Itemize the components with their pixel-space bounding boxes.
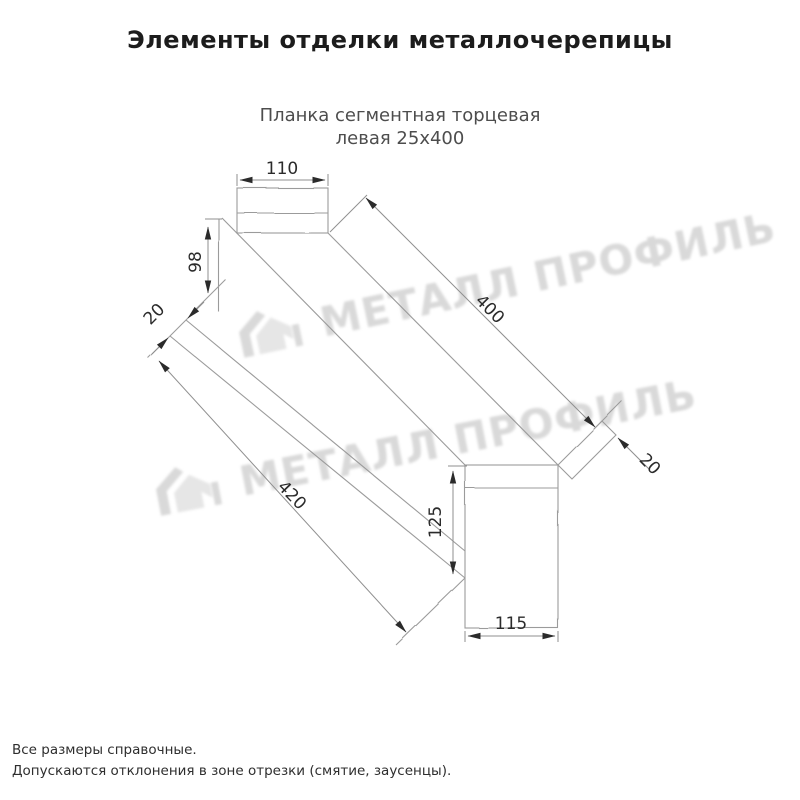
technical-drawing: МЕТАЛЛ ПРОФИЛЬ МЕТАЛЛ ПРОФИЛЬ xyxy=(0,0,800,800)
footnote-line-1: Все размеры справочные. xyxy=(12,740,451,761)
metall-profil-house-logo xyxy=(236,303,304,358)
dim-end-width-label: 115 xyxy=(495,614,527,634)
dim-top-width-label: 110 xyxy=(266,159,298,179)
footnotes: Все размеры справочные. Допускаются откл… xyxy=(12,740,451,782)
dim-end-height-label: 125 xyxy=(426,506,446,538)
footnote-line-2: Допускаются отклонения в зоне отрезки (с… xyxy=(12,761,451,782)
catalog-page: Элементы отделки металлочерепицы Планка … xyxy=(0,0,800,800)
dim-left-height-label: 98 xyxy=(186,251,206,273)
watermark-text-upper: МЕТАЛЛ ПРОФИЛЬ xyxy=(316,203,780,347)
bottom-end-section xyxy=(465,465,558,628)
metall-profil-house-logo xyxy=(153,460,222,516)
watermark-text-lower: МЕТАЛЛ ПРОФИЛЬ xyxy=(236,370,701,506)
dim-end-hem-label: 20 xyxy=(635,450,664,479)
top-end-section xyxy=(237,188,328,233)
dim-left-hem-label: 20 xyxy=(140,300,169,329)
